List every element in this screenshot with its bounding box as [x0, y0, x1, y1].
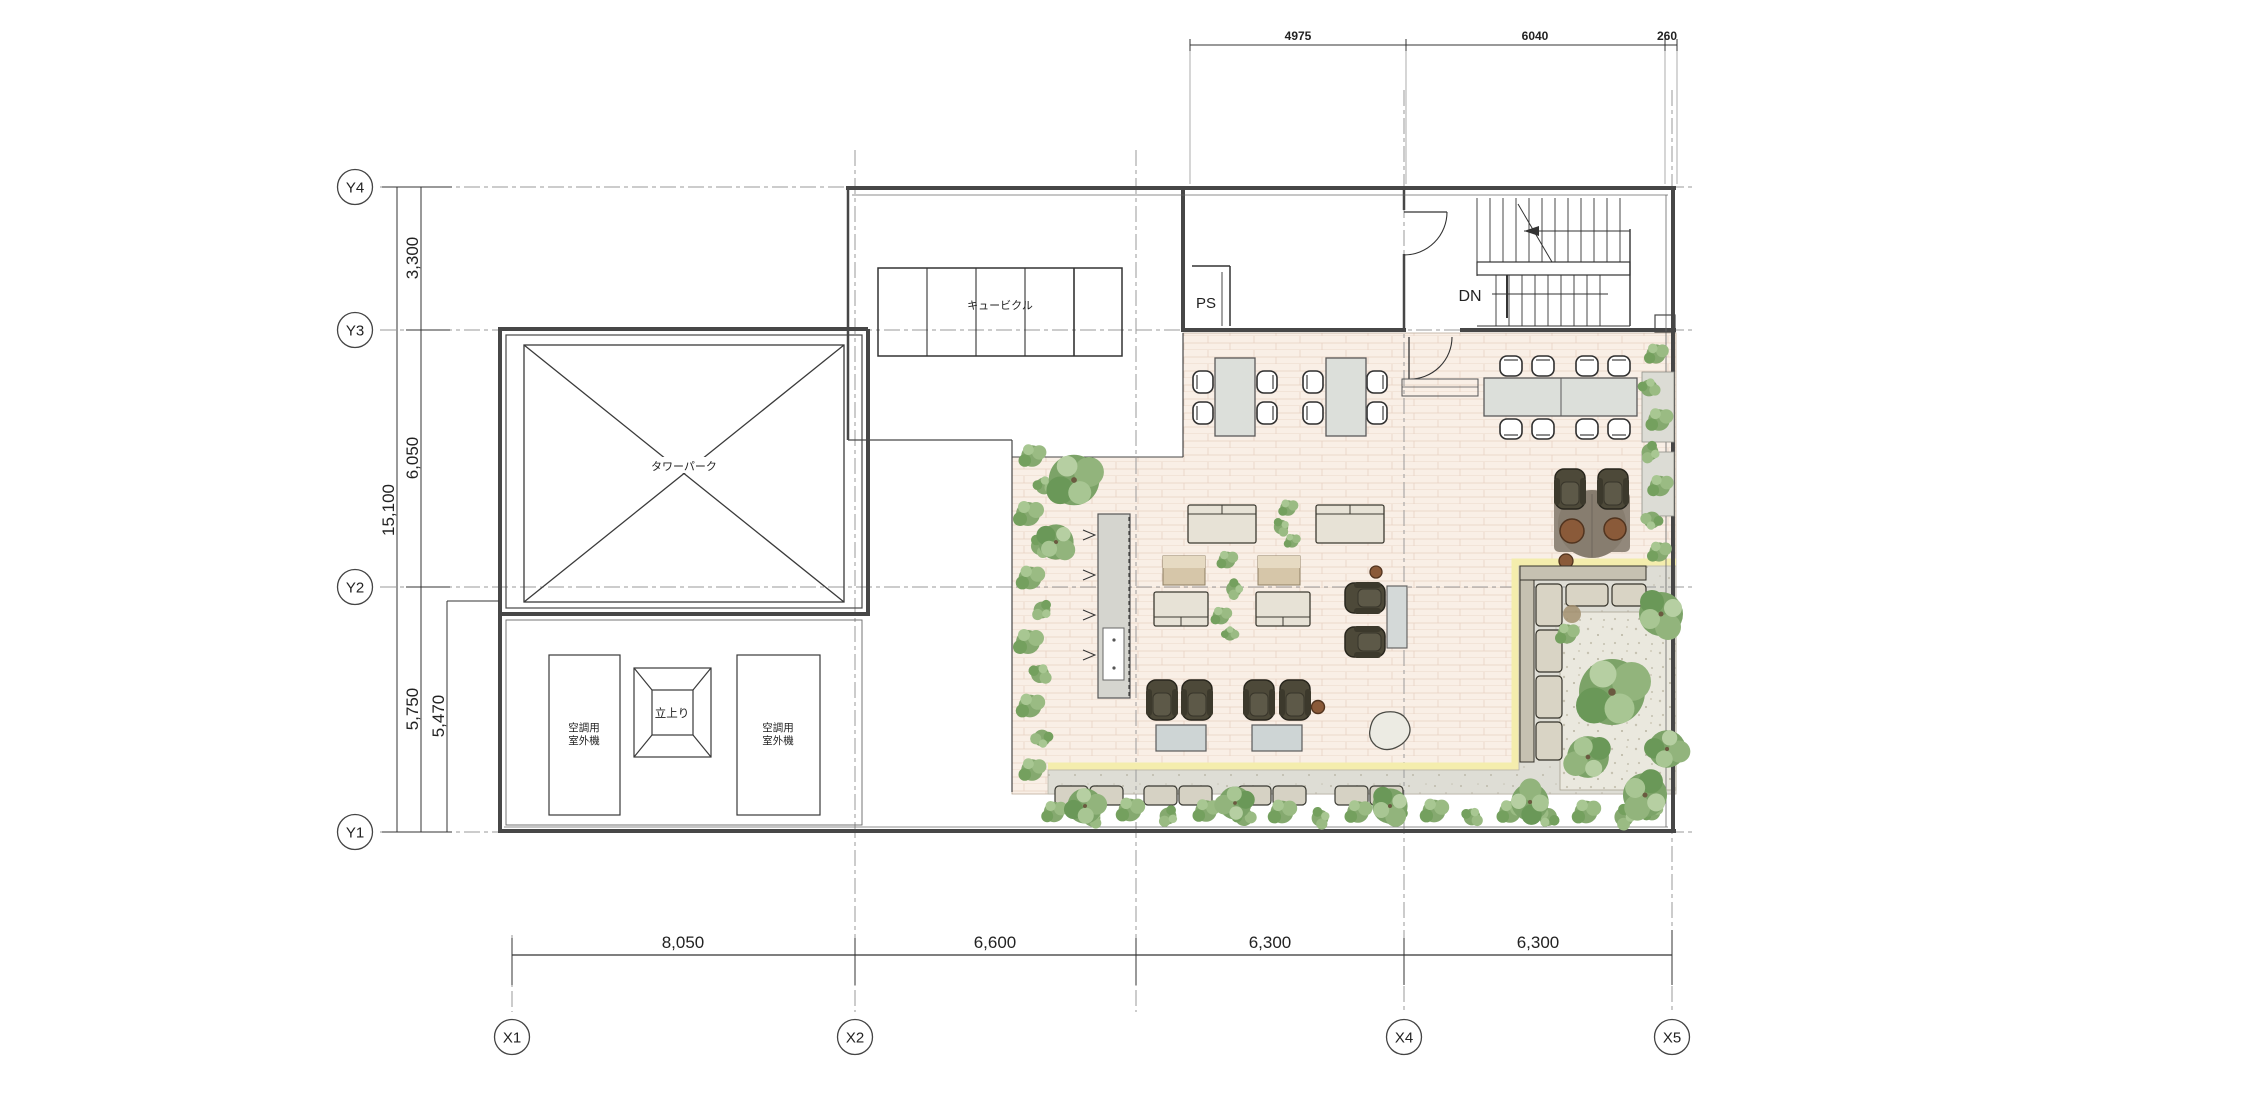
dim-left-seg-3: 5,750	[403, 688, 422, 731]
dining-chair	[1608, 419, 1630, 439]
dim-left-inner: 5,470	[429, 695, 448, 738]
stairs	[1477, 198, 1630, 326]
dim-bottom-2: 6,600	[974, 933, 1017, 952]
riser-label: 立上り	[655, 706, 690, 720]
armchair	[1345, 626, 1385, 658]
svg-text:Y2: Y2	[346, 580, 364, 597]
side-table	[1387, 586, 1407, 648]
tower-parking-label: タワーパーク	[651, 460, 717, 473]
dining-chair	[1500, 419, 1522, 439]
coffee-table	[1252, 725, 1302, 751]
dining-chair	[1257, 371, 1277, 393]
dim-top-3: 260	[1657, 29, 1677, 43]
lounge-sofa	[1154, 592, 1208, 626]
hedge-bush	[1572, 800, 1601, 824]
dim-bottom-3: 6,300	[1249, 933, 1292, 952]
lounge-sofa	[1256, 592, 1310, 626]
dining-chair	[1193, 402, 1213, 424]
dim-left-total: 15,100	[379, 484, 398, 536]
dining-table	[1215, 358, 1255, 436]
dining-chair	[1367, 371, 1387, 393]
dining-chair	[1500, 356, 1522, 376]
bench-cushion	[1536, 722, 1562, 760]
dim-top-1: 4975	[1285, 29, 1312, 43]
bench-cushion	[1536, 584, 1562, 626]
dining-chair	[1193, 371, 1213, 393]
dim-left-seg-1: 3,300	[403, 237, 422, 280]
dim-left-seg-2: 6,050	[403, 437, 422, 480]
wood-side-table	[1163, 556, 1205, 585]
ac-unit-1-label-line1: 空調用	[568, 721, 600, 734]
armchair	[1146, 680, 1178, 720]
grid-label-y4: Y4	[338, 170, 373, 205]
dining-chair	[1608, 356, 1630, 376]
hall-door	[1404, 212, 1447, 255]
dining-chair	[1303, 371, 1323, 393]
bench-cushion	[1536, 676, 1562, 718]
sink	[1103, 628, 1124, 680]
dining-chair	[1532, 356, 1554, 376]
tower-parking: タワーパーク	[524, 345, 844, 602]
floor-plan-drawing: タワーパーク 空調用 室外機 空調用 室外機 立上り キュービクル	[0, 0, 2250, 1100]
bench-cushion	[1566, 584, 1608, 606]
ps-label: PS	[1196, 295, 1216, 312]
svg-text:Y3: Y3	[346, 323, 364, 340]
hedge-bush	[1420, 799, 1449, 823]
grid-label-y3: Y3	[338, 313, 373, 348]
armchair	[1181, 680, 1213, 720]
down-arrow	[1524, 226, 1630, 236]
hedge-bush	[1154, 803, 1182, 829]
wood-side-table	[1258, 556, 1300, 585]
dining-chair	[1367, 402, 1387, 424]
hedge-bush	[1268, 800, 1297, 824]
ac-unit-2-label-line2: 室外機	[762, 734, 794, 747]
electrical-cubicle	[878, 268, 1122, 356]
svg-text:X1: X1	[503, 1030, 521, 1047]
armchair	[1243, 680, 1275, 720]
grid-label-x5: X5	[1655, 1020, 1690, 1055]
grid-label-y2: Y2	[338, 570, 373, 605]
lounge-sofa	[1188, 505, 1256, 543]
grid-label-y1: Y1	[338, 815, 373, 850]
grid-label-x2: X2	[838, 1020, 873, 1055]
grid-label-x4: X4	[1387, 1020, 1422, 1055]
svg-text:X2: X2	[846, 1030, 864, 1047]
cubicle-label: キュービクル	[967, 299, 1033, 312]
dining-table	[1326, 358, 1366, 436]
side-stool	[1370, 566, 1382, 578]
armchair	[1597, 469, 1629, 509]
stair-room	[1192, 198, 1630, 326]
dim-top-2: 6040	[1522, 29, 1549, 43]
coffee-table	[1156, 725, 1206, 751]
dining-chair	[1576, 419, 1598, 439]
svg-text:X4: X4	[1395, 1030, 1413, 1047]
floor-plan-page: タワーパーク 空調用 室外機 空調用 室外機 立上り キュービクル	[0, 0, 2250, 1100]
pouf	[1604, 518, 1626, 540]
grid-label-x1: X1	[495, 1020, 530, 1055]
armchair	[1279, 680, 1311, 720]
dining-chair	[1532, 419, 1554, 439]
ac-unit-1-label-line2: 室外機	[568, 734, 600, 747]
armchair	[1554, 469, 1586, 509]
dn-label: DN	[1458, 288, 1481, 305]
armchair	[1345, 582, 1385, 614]
dining-chair	[1576, 356, 1598, 376]
dining-chair	[1303, 402, 1323, 424]
svg-text:Y1: Y1	[346, 825, 364, 842]
svg-text:X5: X5	[1663, 1030, 1681, 1047]
pouf	[1560, 519, 1584, 543]
bench-cushion	[1144, 786, 1177, 805]
lounge-sofa	[1316, 505, 1384, 543]
side-stool	[1312, 701, 1325, 714]
hedge-bush	[1041, 801, 1067, 822]
dim-bottom-4: 6,300	[1517, 933, 1560, 952]
dining-chair	[1257, 402, 1277, 424]
dim-bottom-1: 8,050	[662, 933, 705, 952]
svg-text:Y4: Y4	[346, 180, 364, 197]
ac-unit-2-label-line1: 空調用	[762, 721, 794, 734]
